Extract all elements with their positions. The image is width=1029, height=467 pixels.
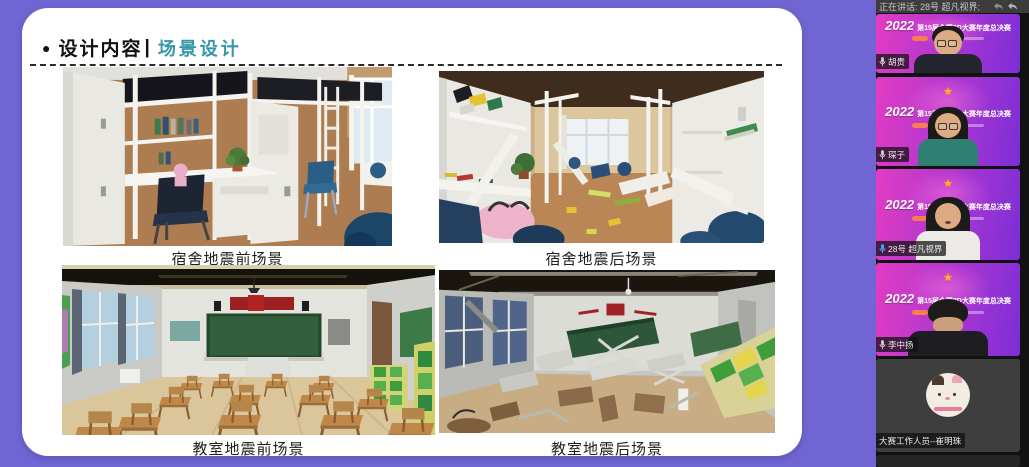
banner-year: 2022 xyxy=(885,291,914,306)
slide-title-sub: 场景设计 xyxy=(158,35,242,61)
slide-title: ● 设计内容 | 场景设计 xyxy=(42,34,242,61)
classroom-before-illustration xyxy=(62,265,435,435)
image-caption: 教室地震前场景 xyxy=(62,438,435,459)
image-caption: 教室地震后场景 xyxy=(439,438,775,459)
participant-video-1[interactable]: 2022 第15届全国3D大赛年度总决赛 胡贵 xyxy=(876,14,1020,73)
dorm-after-illustration xyxy=(439,71,764,243)
participant-name-label: 大赛工作人员--崔明珠 xyxy=(876,433,965,448)
classroom-after-illustration xyxy=(439,270,775,433)
shared-slide: ● 设计内容 | 场景设计 xyxy=(22,8,802,456)
dashed-divider xyxy=(30,64,782,66)
banner-year: 2022 xyxy=(885,104,914,119)
participant-video-partial[interactable] xyxy=(876,455,1020,467)
participant-video-3[interactable]: ★ 2022 第15届全国3D大赛年度总决赛 28号 超凡视界 xyxy=(876,169,1020,260)
slide-title-separator: | xyxy=(144,37,149,59)
participant-video-2[interactable]: ★ 2022 第15届全国3D大赛年度总决赛 琛子 xyxy=(876,77,1020,166)
banner-year: 2022 xyxy=(885,197,914,212)
participant-name-label: 李中扬 xyxy=(876,337,918,352)
image-caption: 宿舍地震后场景 xyxy=(439,248,764,269)
banner-trophy-icon: ★ xyxy=(876,179,1020,190)
participant-video-4[interactable]: ★ 2022 第15届全国3D大赛年度总决赛 李中扬 xyxy=(876,263,1020,356)
classroom-after-image xyxy=(439,270,775,433)
mic-icon xyxy=(879,57,886,67)
bullet-icon: ● xyxy=(42,41,50,55)
participant-name-label: 琛子 xyxy=(876,147,909,162)
dorm-before-illustration xyxy=(63,67,392,246)
participant-name-label: 胡贵 xyxy=(876,54,909,69)
classroom-before-image xyxy=(62,265,435,435)
participant-video-5[interactable]: 大赛工作人员--崔明珠 xyxy=(876,359,1020,452)
undo-arrow-icon[interactable] xyxy=(993,2,1004,11)
banner-trophy-icon: ★ xyxy=(876,87,1020,98)
meeting-window: ● 设计内容 | 场景设计 xyxy=(0,0,1029,467)
speaking-status-label: 正在讲话: 28号 超凡视界; xyxy=(879,0,980,13)
banner-year: 2022 xyxy=(885,18,914,33)
dorm-after-image xyxy=(439,71,764,243)
speaking-status-bar: 正在讲话: 28号 超凡视界; xyxy=(876,0,1029,13)
participant-name-label: 28号 超凡视界 xyxy=(876,241,946,256)
banner-title: 第15届全国3D大赛年度总决赛 xyxy=(917,23,1011,33)
mic-icon xyxy=(879,340,886,350)
mic-icon xyxy=(879,150,886,160)
participants-panel: 正在讲话: 28号 超凡视界; 2022 第15届全国3D大赛年度总决赛 xyxy=(876,0,1029,467)
cat-avatar xyxy=(926,373,970,417)
mic-icon xyxy=(879,244,886,254)
reply-arrow-icon[interactable] xyxy=(1007,2,1018,11)
dorm-before-image xyxy=(63,67,392,246)
banner-trophy-icon: ★ xyxy=(876,273,1020,284)
slide-title-main: 设计内容 xyxy=(58,34,142,61)
